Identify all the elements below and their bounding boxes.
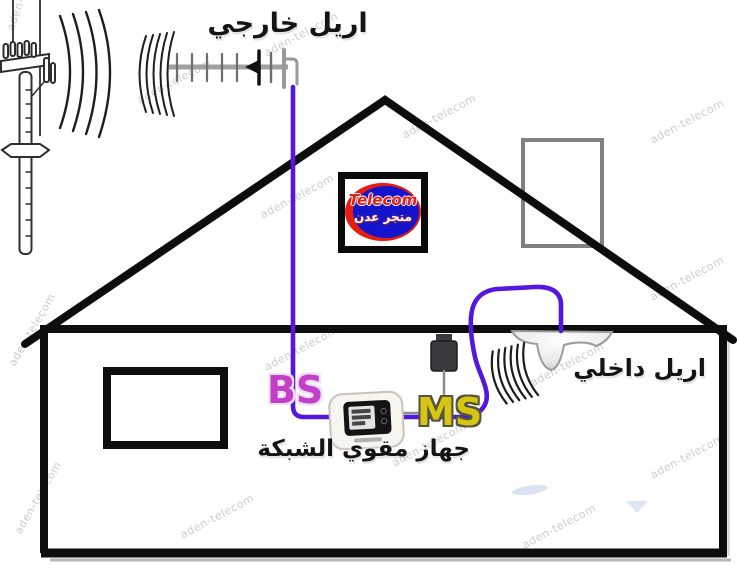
faint-smudges [512,483,648,513]
telecom-logo: Telecom متجر عدن [338,172,428,253]
booster-device-label: جهاز مقوي الشبكة [275,436,470,462]
diagram-artwork [0,0,737,582]
booster-led [381,418,386,423]
signal-waves-outdoor-icon [60,10,110,137]
window [107,371,224,445]
signal-booster-diagram: aden-telecom aden-telecom aden-telecom a… [0,0,737,582]
yagi-antenna-icon [169,50,297,87]
logo-subtitle-text: متجر عدن [345,210,421,224]
cell-tower-icon [1,0,55,254]
signal-waves-indoor-icon [487,343,538,405]
house-outline [25,100,733,560]
external-antenna-label: اريل خارجي [205,8,370,39]
signal-waves-received-icon [140,32,175,116]
ms-port-label: MS [417,390,482,434]
bs-port-label: BS [267,368,323,412]
internal-antenna-label: اريل داخلي [588,354,706,382]
booster-led [381,408,386,413]
chimney [523,140,602,246]
logo-brand-text: Telecom [345,191,421,209]
